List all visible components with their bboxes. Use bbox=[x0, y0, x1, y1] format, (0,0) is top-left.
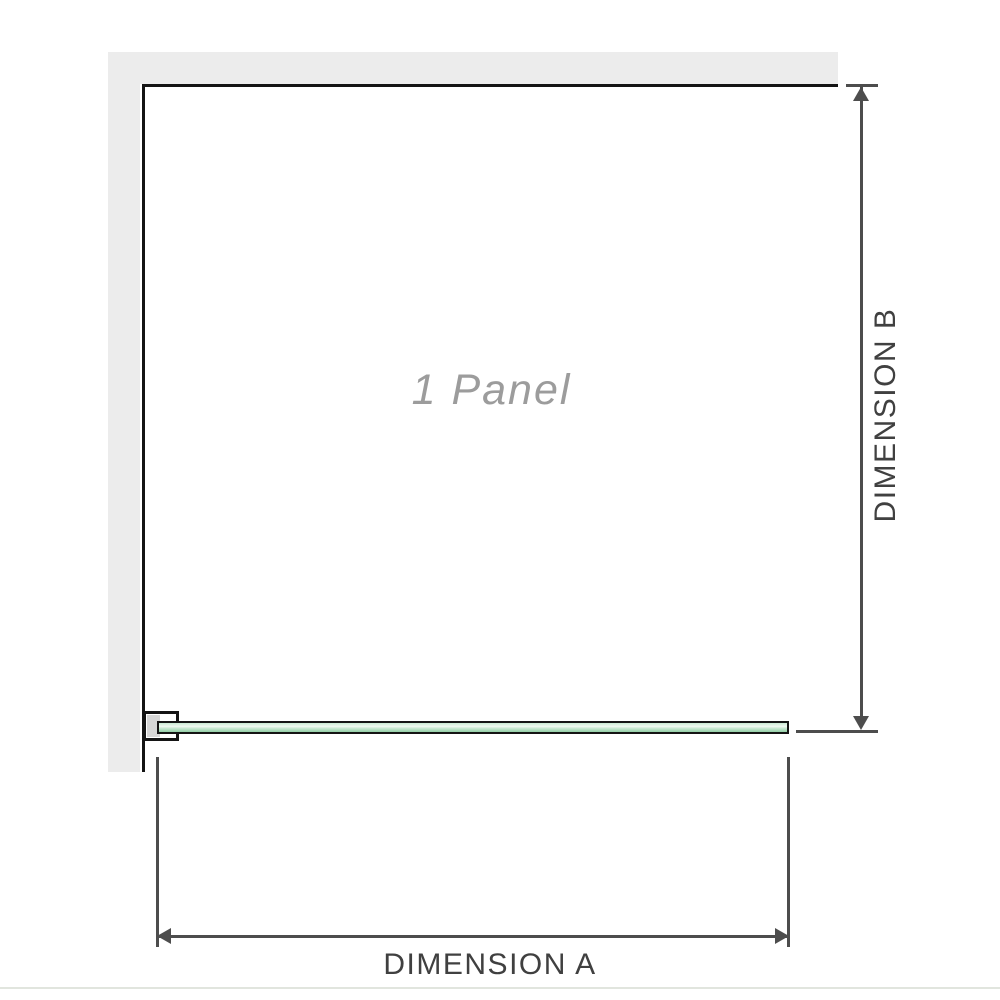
page-separator-line bbox=[0, 987, 1000, 989]
glass-panel-bar bbox=[157, 721, 789, 734]
shower-panel-diagram: 1 Panel DIMENSION B DIMENSION A bbox=[0, 0, 1000, 1000]
dimension-a-right-extension-line bbox=[787, 757, 790, 947]
panel-left-edge-line bbox=[142, 84, 145, 772]
dimension-b-arrow-down-icon bbox=[853, 716, 869, 730]
dimension-a-arrow-left-icon bbox=[157, 928, 171, 944]
dimension-a-line bbox=[157, 935, 789, 938]
dimension-a-arrow-right-icon bbox=[775, 928, 789, 944]
panel-top-edge-line bbox=[142, 84, 838, 87]
dimension-b-arrow-up-icon bbox=[853, 87, 869, 101]
wall-top-strip bbox=[108, 52, 838, 84]
dimension-a-label: DIMENSION A bbox=[142, 948, 838, 982]
dimension-b-label: DIMENSION B bbox=[871, 305, 901, 525]
wall-left-strip bbox=[108, 52, 140, 772]
dimension-a-left-extension-line bbox=[156, 757, 159, 947]
dimension-b-bottom-tick bbox=[796, 730, 878, 733]
panel-count-label: 1 Panel bbox=[145, 366, 838, 415]
dimension-b-line bbox=[860, 87, 863, 718]
